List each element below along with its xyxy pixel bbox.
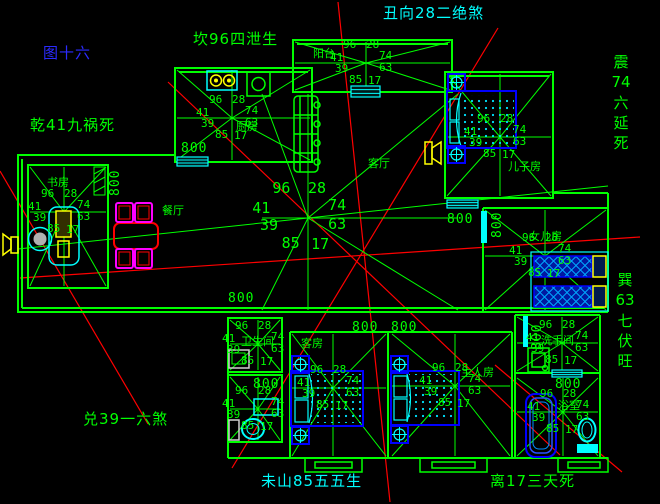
star-number-mid_right: 63	[513, 135, 526, 148]
star-number-mid_left: 39	[514, 255, 527, 268]
star-number-top_left: 96	[235, 319, 248, 332]
star-number-mid_right: 63	[328, 215, 346, 233]
star-number-mid_right: 63	[576, 410, 589, 423]
star-number-top_left: 96	[209, 93, 222, 106]
star-number-bottom_left: 85	[241, 419, 254, 432]
star-number-mid_right: 63	[77, 210, 90, 223]
star-number-top_right: 28	[232, 93, 245, 106]
star-number-top_left: 96	[41, 187, 54, 200]
room-label-living: 客厅	[368, 158, 390, 170]
star-number-top_left: 96	[477, 112, 490, 125]
star-number-bottom_left: 85	[528, 266, 541, 279]
dimension-label: 800	[391, 320, 417, 335]
direction-label-dui: 兑39一六煞	[83, 411, 168, 428]
star-number-bottom_left: 85	[47, 222, 60, 235]
star-number-bottom_left: 85	[438, 396, 451, 409]
direction-label-chou: 丑向28二绝煞	[383, 5, 484, 22]
star-number-mid_right: 63	[245, 116, 258, 129]
window-icon	[351, 86, 380, 97]
room-label-washroom: 洗手间	[541, 335, 574, 347]
star-number-mid_left: 39	[302, 387, 315, 400]
star-number-bottom_left: 85	[349, 73, 362, 86]
star-number-bottom_right: 17	[260, 420, 273, 433]
star-number-top_right: 28	[562, 318, 575, 331]
star-number-mid_left: 39	[469, 136, 482, 149]
star-number-bottom_left: 85	[241, 354, 254, 367]
star-number-mid_right: 63	[379, 61, 392, 74]
star-number-bottom_right: 17	[260, 355, 273, 368]
star-number-bottom_right: 17	[547, 267, 560, 280]
star-number-mid_left: 39	[227, 343, 240, 356]
star-number-bottom_left: 85	[546, 422, 559, 435]
room-label-dining: 餐厅	[162, 205, 184, 217]
star-number-top_right: 28	[64, 187, 77, 200]
star-number-top_left: 96	[539, 318, 552, 331]
star-number-mid_left: 39	[532, 411, 545, 424]
star-number-top_left: 96	[235, 384, 248, 397]
star-number-bottom_left: 85	[483, 147, 496, 160]
star-number-top_left: 96	[540, 387, 553, 400]
window-icon	[177, 157, 208, 166]
star-number-mid_left: 39	[227, 408, 240, 421]
star-number-top_right: 28	[455, 361, 468, 374]
star-number-mid_left: 39	[531, 342, 544, 355]
star-number-bottom_left: 85	[316, 398, 329, 411]
star-number-bottom_right: 17	[234, 129, 247, 142]
floor-plan-canvas[interactable]: 图十六 丑向28二绝煞 坎96四泄生 乾41九祸死 震 74 六 延 死 巽 6…	[0, 0, 660, 504]
star-number-bottom_right: 17	[564, 354, 577, 367]
star-number-mid_right: 63	[346, 386, 359, 399]
star-number-mid_right: 63	[271, 407, 284, 420]
direction-label-kan: 坎96四泄生	[193, 31, 278, 48]
direction-label-wei: 未山85五五生	[261, 473, 362, 490]
figure-title: 图十六	[43, 45, 91, 62]
star-number-top_right: 28	[563, 387, 576, 400]
dimension-label: 800	[352, 320, 378, 335]
star-number-bottom_left: 85	[215, 128, 228, 141]
star-number-top_right: 28	[545, 231, 558, 244]
speaker-icon	[3, 234, 18, 255]
dimension-label: 800	[228, 291, 254, 306]
star-number-top_right: 28	[258, 319, 271, 332]
room-label-guest: 客房	[301, 338, 323, 350]
star-number-mid_left: 39	[33, 211, 46, 224]
dimension-label: 800	[490, 212, 505, 238]
sofa-icon	[294, 96, 320, 172]
hatch-column	[94, 167, 105, 195]
star-number-top_right: 28	[366, 38, 379, 51]
star-number-top_left: 96	[343, 38, 356, 51]
window-icon	[447, 200, 478, 208]
star-number-bottom_right: 17	[457, 397, 470, 410]
kitchen-sink-icon	[247, 72, 270, 96]
duct-fill	[481, 211, 487, 243]
star-number-mid_right: 63	[271, 342, 284, 355]
star-number-bottom_right: 17	[368, 74, 381, 87]
star-number-bottom_right: 17	[311, 235, 329, 253]
pillow-icon	[593, 256, 606, 277]
direction-label-xun: 巽 63 七 伏 旺	[612, 270, 638, 371]
star-number-bottom_left: 85	[545, 353, 558, 366]
window-niches	[305, 458, 608, 472]
star-number-mid_right: 63	[575, 341, 588, 354]
star-number-mid_left: 39	[201, 117, 214, 130]
star-number-top_left: 96	[272, 179, 290, 197]
star-number-bottom_left: 85	[282, 234, 300, 252]
dimension-label: 800	[447, 212, 473, 227]
dimension-label: 800	[181, 141, 207, 156]
direction-label-qian: 乾41九祸死	[30, 117, 115, 134]
room-label-son: 儿子房	[508, 161, 541, 173]
room-label-bathroom: 卫生间	[241, 336, 274, 348]
star-number-top_left: 96	[432, 361, 445, 374]
star-number-mid_left: 39	[260, 216, 278, 234]
dimension-label: 800	[108, 170, 123, 196]
star-number-top_right: 28	[333, 363, 346, 376]
star-number-left: 41	[252, 199, 270, 217]
star-number-bottom_right: 17	[66, 223, 79, 236]
star-number-bottom_right: 17	[335, 399, 348, 412]
star-number-top_left: 96	[522, 231, 535, 244]
star-number-bottom_right: 17	[502, 148, 515, 161]
direction-label-zhen: 震 74 六 延 死	[608, 52, 634, 153]
direction-label-li: 离17三天死	[490, 473, 575, 490]
window-icon	[552, 370, 582, 377]
star-number-bottom_right: 17	[565, 423, 578, 436]
star-number-mid_left: 39	[424, 385, 437, 398]
star-number-top_right: 28	[500, 112, 513, 125]
star-number-top_right: 28	[308, 179, 326, 197]
star-number-mid_left: 39	[335, 62, 348, 75]
star-number-mid_right: 63	[468, 384, 481, 397]
ceiling-light-icon	[292, 427, 309, 444]
pillow-icon	[593, 286, 606, 307]
star-number-mid_right: 63	[558, 254, 571, 267]
star-number-top_left: 96	[310, 363, 323, 376]
star-number-right: 74	[328, 196, 346, 214]
bath-toilet-icon	[577, 419, 598, 454]
star-number-top_right: 28	[258, 384, 271, 397]
